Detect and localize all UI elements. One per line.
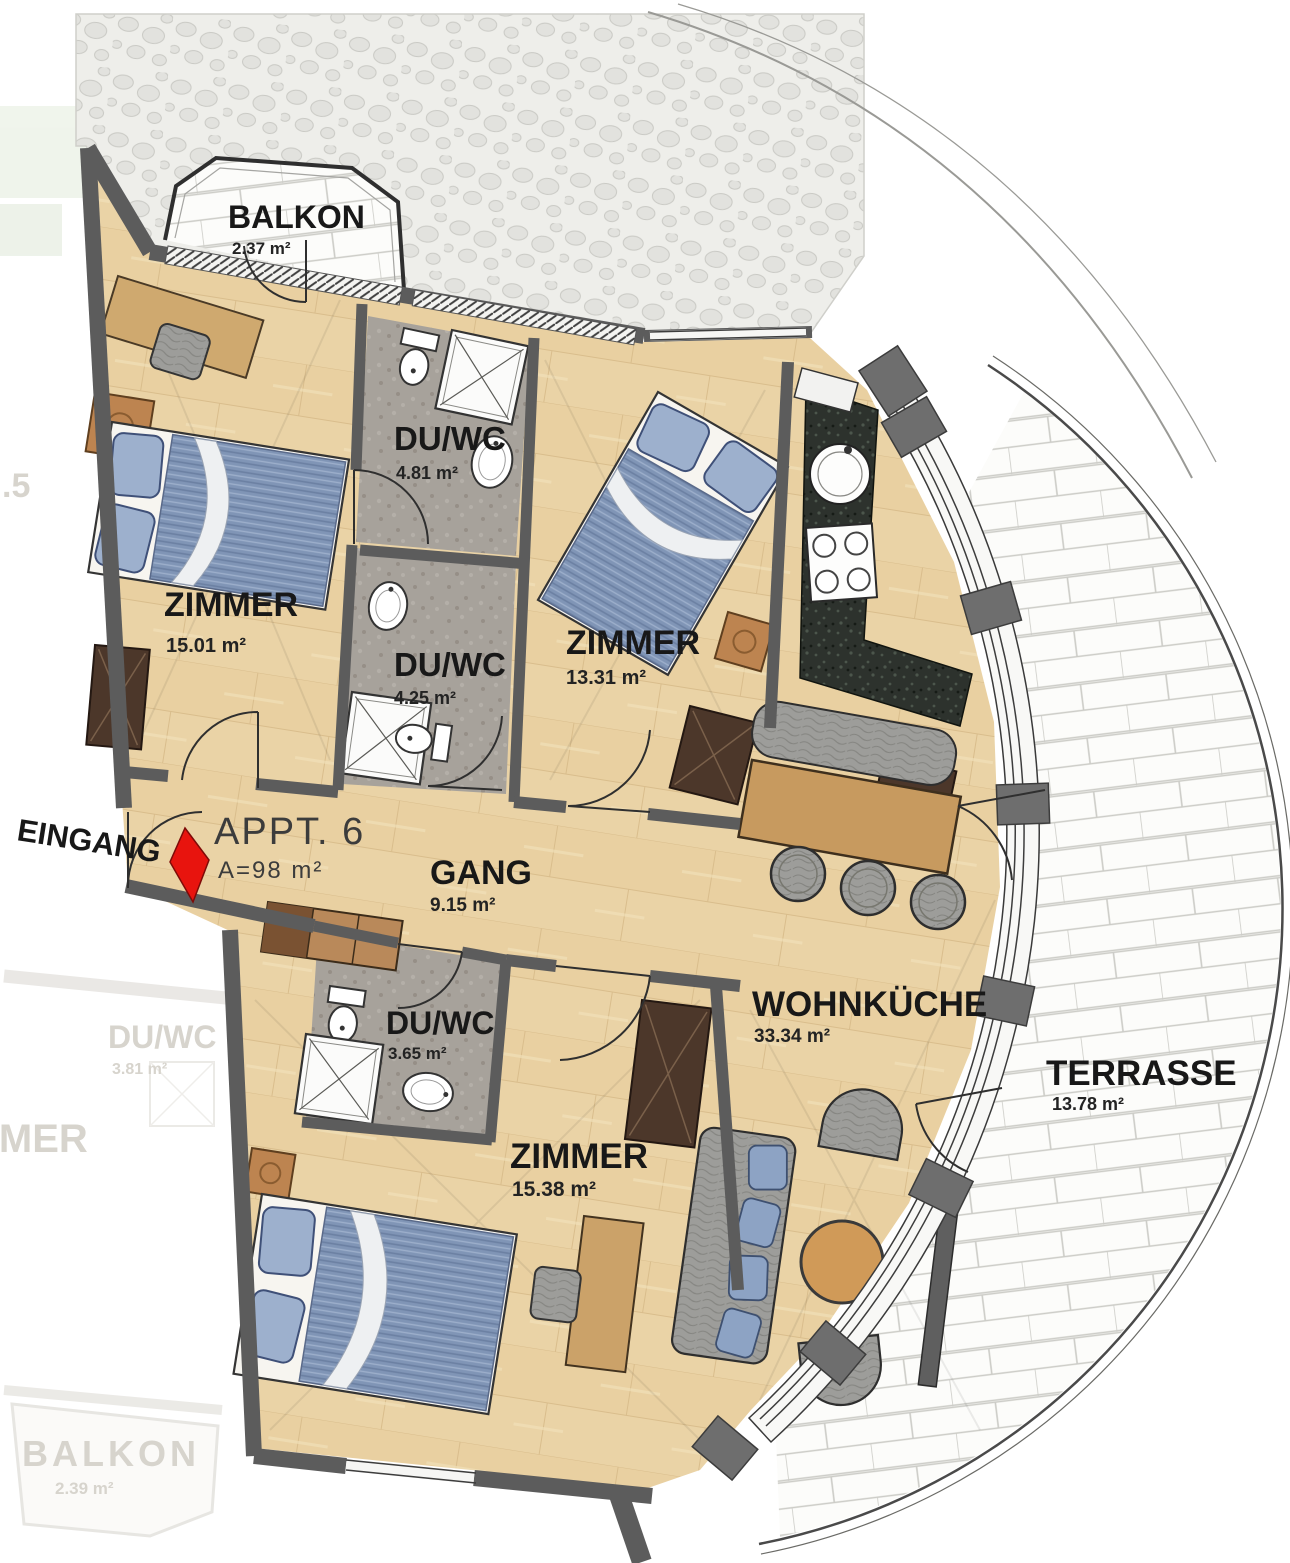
zimmer-ne-label: ZIMMER xyxy=(566,624,700,662)
stove xyxy=(806,523,877,601)
zimmer-nw-area: 15.01 m² xyxy=(166,635,246,657)
zimmer-s-label: ZIMMER xyxy=(510,1137,648,1176)
duwc-top-area: 4.81 m² xyxy=(396,463,458,483)
desk-stool-s xyxy=(530,1266,582,1323)
wohnkueche-area: 33.34 m² xyxy=(754,1026,830,1047)
floor-plan-page: BALKON 2.37 m² ZIMMER 15.01 m² DU/WC 4.8… xyxy=(0,0,1290,1563)
duwc-low-area: 3.65 m² xyxy=(388,1044,447,1063)
duwc-mid-label: DU/WC xyxy=(394,646,506,683)
terrasse-area: 13.78 m² xyxy=(1052,1094,1124,1114)
zimmer-nw-label: ZIMMER xyxy=(164,586,298,624)
zimmer-ne-area: 13.31 m² xyxy=(566,667,646,689)
faded-duwc-label: DU/WC xyxy=(108,1019,216,1055)
faded-duwc-area: 3.81 m² xyxy=(112,1061,167,1078)
kitchen-sink xyxy=(810,444,870,504)
faded-balkon-label: BALKON xyxy=(22,1433,200,1474)
faded-balkon-area: 2.39 m² xyxy=(55,1479,114,1498)
wohnkueche-label: WOHNKÜCHE xyxy=(752,985,987,1024)
apartment-name: APPT. 6 xyxy=(214,811,365,853)
balkon-area: 2.37 m² xyxy=(232,239,291,258)
floor-plan-svg: BALKON 2.37 m² ZIMMER 15.01 m² DU/WC 4.8… xyxy=(0,0,1290,1563)
terrasse-label: TERRASSE xyxy=(1046,1054,1237,1093)
gang-label: GANG xyxy=(430,854,532,892)
double-bed-s xyxy=(234,1194,517,1414)
duwc-top-label: DU/WC xyxy=(394,420,506,457)
zimmer-s-area: 15.38 m² xyxy=(512,1178,596,1201)
gang-area: 9.15 m² xyxy=(430,895,495,916)
faded-appt-fragment: .5 xyxy=(2,467,30,505)
balkon-label: BALKON xyxy=(228,199,365,235)
duwc-mid-area: 4.25 m² xyxy=(394,688,456,708)
bedside-table-s xyxy=(245,1148,295,1198)
duwc-low-label: DU/WC xyxy=(386,1005,494,1041)
faded-zimmer-label: ZIMMER xyxy=(0,1117,88,1161)
apartment-total-area: A=98 m² xyxy=(218,857,323,884)
shower-duwc-top xyxy=(435,330,528,424)
shower-duwc-low xyxy=(295,1034,383,1124)
